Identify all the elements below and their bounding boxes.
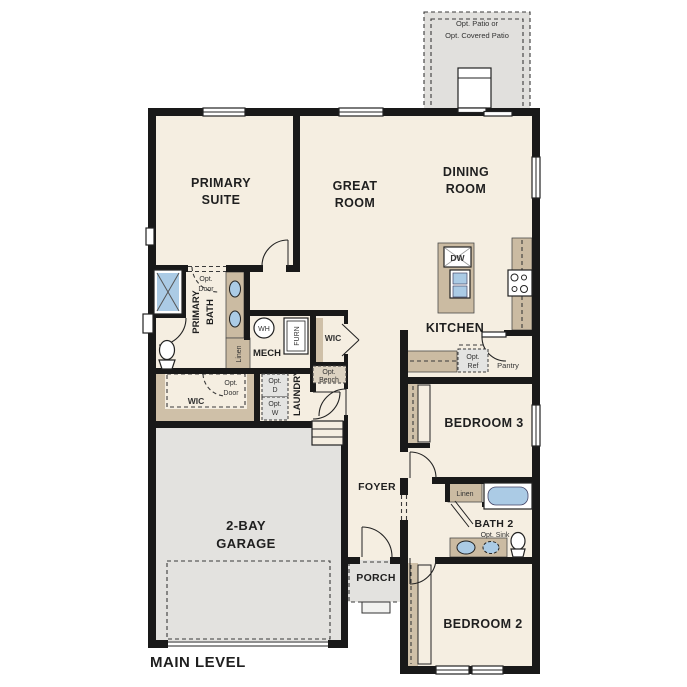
optional-refrigerator: Opt. Ref: [458, 345, 488, 372]
label-wic-primary: WIC: [188, 396, 205, 406]
bath2-optional-sink: [483, 542, 499, 554]
water-heater-label: WH: [258, 326, 270, 333]
optional-patio: Opt. Patio or Opt. Covered Patio: [424, 12, 530, 110]
stove: [508, 270, 532, 296]
svg-text:Opt.: Opt.: [268, 401, 281, 408]
svg-text:GARAGE: GARAGE: [216, 536, 275, 551]
svg-text:W: W: [272, 410, 279, 417]
svg-text:Opt.: Opt.: [322, 369, 335, 376]
optional-bench: Opt. Bench: [313, 366, 346, 384]
svg-text:Door: Door: [198, 286, 214, 293]
svg-text:SUITE: SUITE: [202, 193, 241, 207]
label-mech: MECH: [253, 348, 281, 359]
label-bedroom3: BEDROOM 3: [444, 416, 523, 430]
label-opt-door-wic: Opt.: [224, 380, 237, 387]
vanity-sink-1: [230, 281, 241, 297]
label-primary-bath: PRIMARY: [191, 290, 202, 334]
label-porch: PORCH: [356, 572, 395, 584]
label-opt-door-bath: Opt.: [199, 276, 212, 283]
label-foyer: FOYER: [358, 481, 396, 493]
patio-label-line2: Opt. Covered Patio: [445, 31, 509, 40]
label-linen-bath2: Linen: [456, 491, 473, 498]
floor-level-title: MAIN LEVEL: [150, 654, 246, 671]
svg-text:Ref: Ref: [468, 363, 479, 370]
label-bath2: BATH 2: [475, 518, 514, 530]
sliding-door-panel-1: [458, 108, 486, 113]
svg-text:ROOM: ROOM: [335, 196, 376, 210]
shower: [154, 270, 182, 314]
vanity-sink-2: [230, 311, 241, 327]
label-wic-hall: WIC: [325, 333, 342, 343]
svg-text:Bench: Bench: [319, 377, 339, 384]
dishwasher-label: DW: [450, 253, 465, 263]
label-bedroom2: BEDROOM 2: [443, 617, 522, 631]
furnace: FURN: [284, 318, 308, 354]
optional-washer: Opt. W: [262, 397, 288, 420]
svg-text:Opt.: Opt.: [268, 378, 281, 385]
bath2-sink: [457, 541, 475, 554]
toilet-bath2: [511, 533, 525, 558]
label-primary-suite: PRIMARY: [191, 176, 251, 190]
dishwasher: DW: [444, 247, 471, 267]
toilet-primary: [159, 341, 175, 370]
floor-plan-svg: Opt. Patio or Opt. Covered Patio: [0, 0, 687, 687]
label-great-room: GREAT: [333, 179, 378, 193]
svg-text:D: D: [272, 387, 277, 394]
optional-dryer: Opt. D: [262, 374, 288, 397]
kitchen-sink: [450, 270, 470, 298]
svg-text:Opt.: Opt.: [466, 354, 479, 361]
label-laundry: LAUNDRY: [292, 369, 303, 416]
fireplace: [458, 68, 491, 108]
sliding-door-panel-2: [484, 112, 512, 117]
label-kitchen: KITCHEN: [426, 321, 484, 335]
garage-entry-steps: [312, 421, 343, 445]
label-pantry: Pantry: [497, 361, 519, 370]
svg-text:ROOM: ROOM: [446, 182, 487, 196]
floor-plan-page: Opt. Patio or Opt. Covered Patio: [0, 0, 687, 687]
label-linen-primary: Linen: [236, 345, 243, 362]
bathtub: [484, 483, 532, 509]
porch-step: [362, 602, 390, 613]
window-left-suite: [146, 228, 154, 245]
label-garage: 2-BAY: [226, 518, 266, 533]
svg-text:BATH: BATH: [205, 299, 216, 325]
window-primary-bath: [143, 314, 153, 333]
patio-label-line1: Opt. Patio or: [456, 19, 499, 28]
label-opt-sink: Opt. Sink: [481, 532, 510, 539]
furnace-label: FURN: [294, 326, 301, 345]
svg-text:Door: Door: [223, 390, 239, 397]
label-dining-room: DINING: [443, 165, 489, 179]
